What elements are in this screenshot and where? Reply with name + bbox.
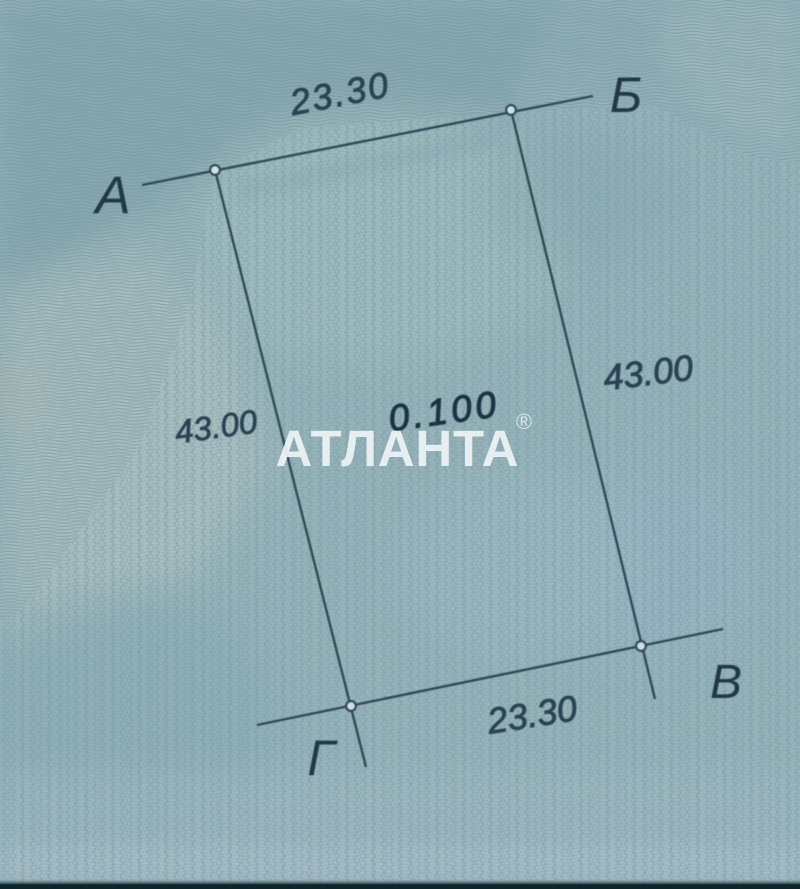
svg-text:А: А: [92, 166, 130, 225]
svg-text:®: ®: [516, 409, 532, 434]
svg-text:Б: Б: [610, 67, 643, 123]
svg-text:АТЛАНТА: АТЛАНТА: [276, 420, 519, 477]
svg-text:В: В: [710, 656, 742, 709]
svg-text:Г: Г: [307, 730, 338, 786]
